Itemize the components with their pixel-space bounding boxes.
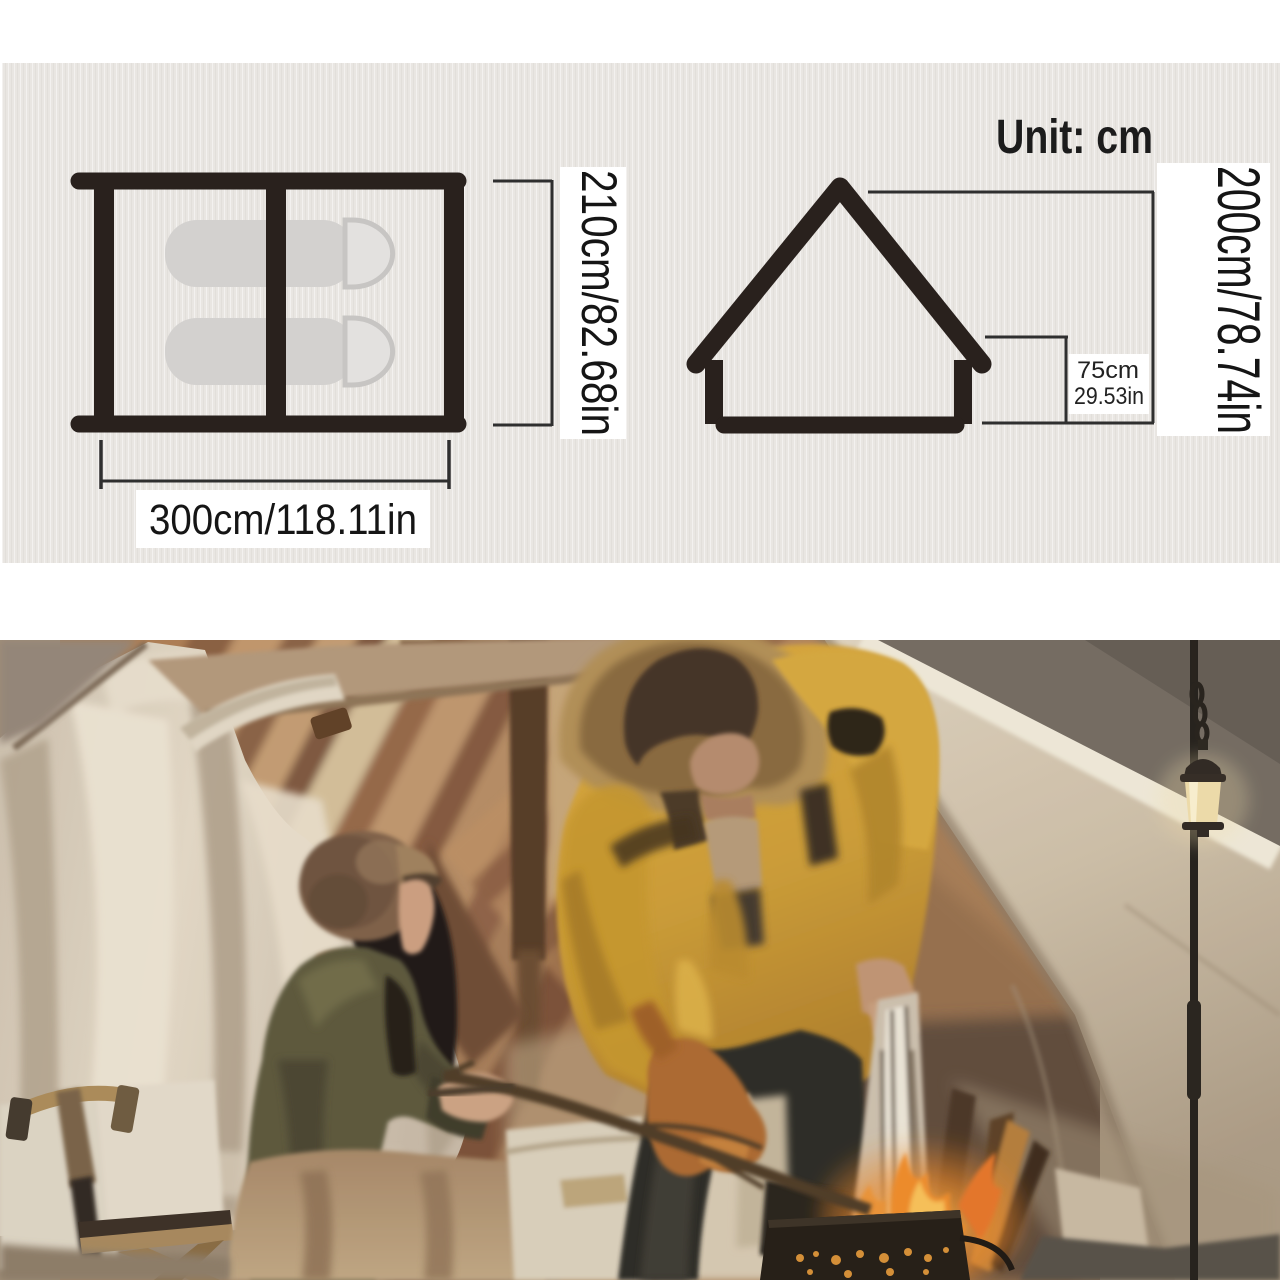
svg-text:200cm/78.74in: 200cm/78.74in	[1205, 166, 1272, 434]
svg-text:Unit: cm: Unit: cm	[996, 111, 1153, 164]
svg-text:29.53in: 29.53in	[1074, 383, 1144, 410]
svg-text:210cm/82.68in: 210cm/82.68in	[571, 170, 627, 436]
svg-text:300cm/118.11in: 300cm/118.11in	[149, 496, 417, 544]
svg-text:75cm: 75cm	[1077, 357, 1139, 384]
